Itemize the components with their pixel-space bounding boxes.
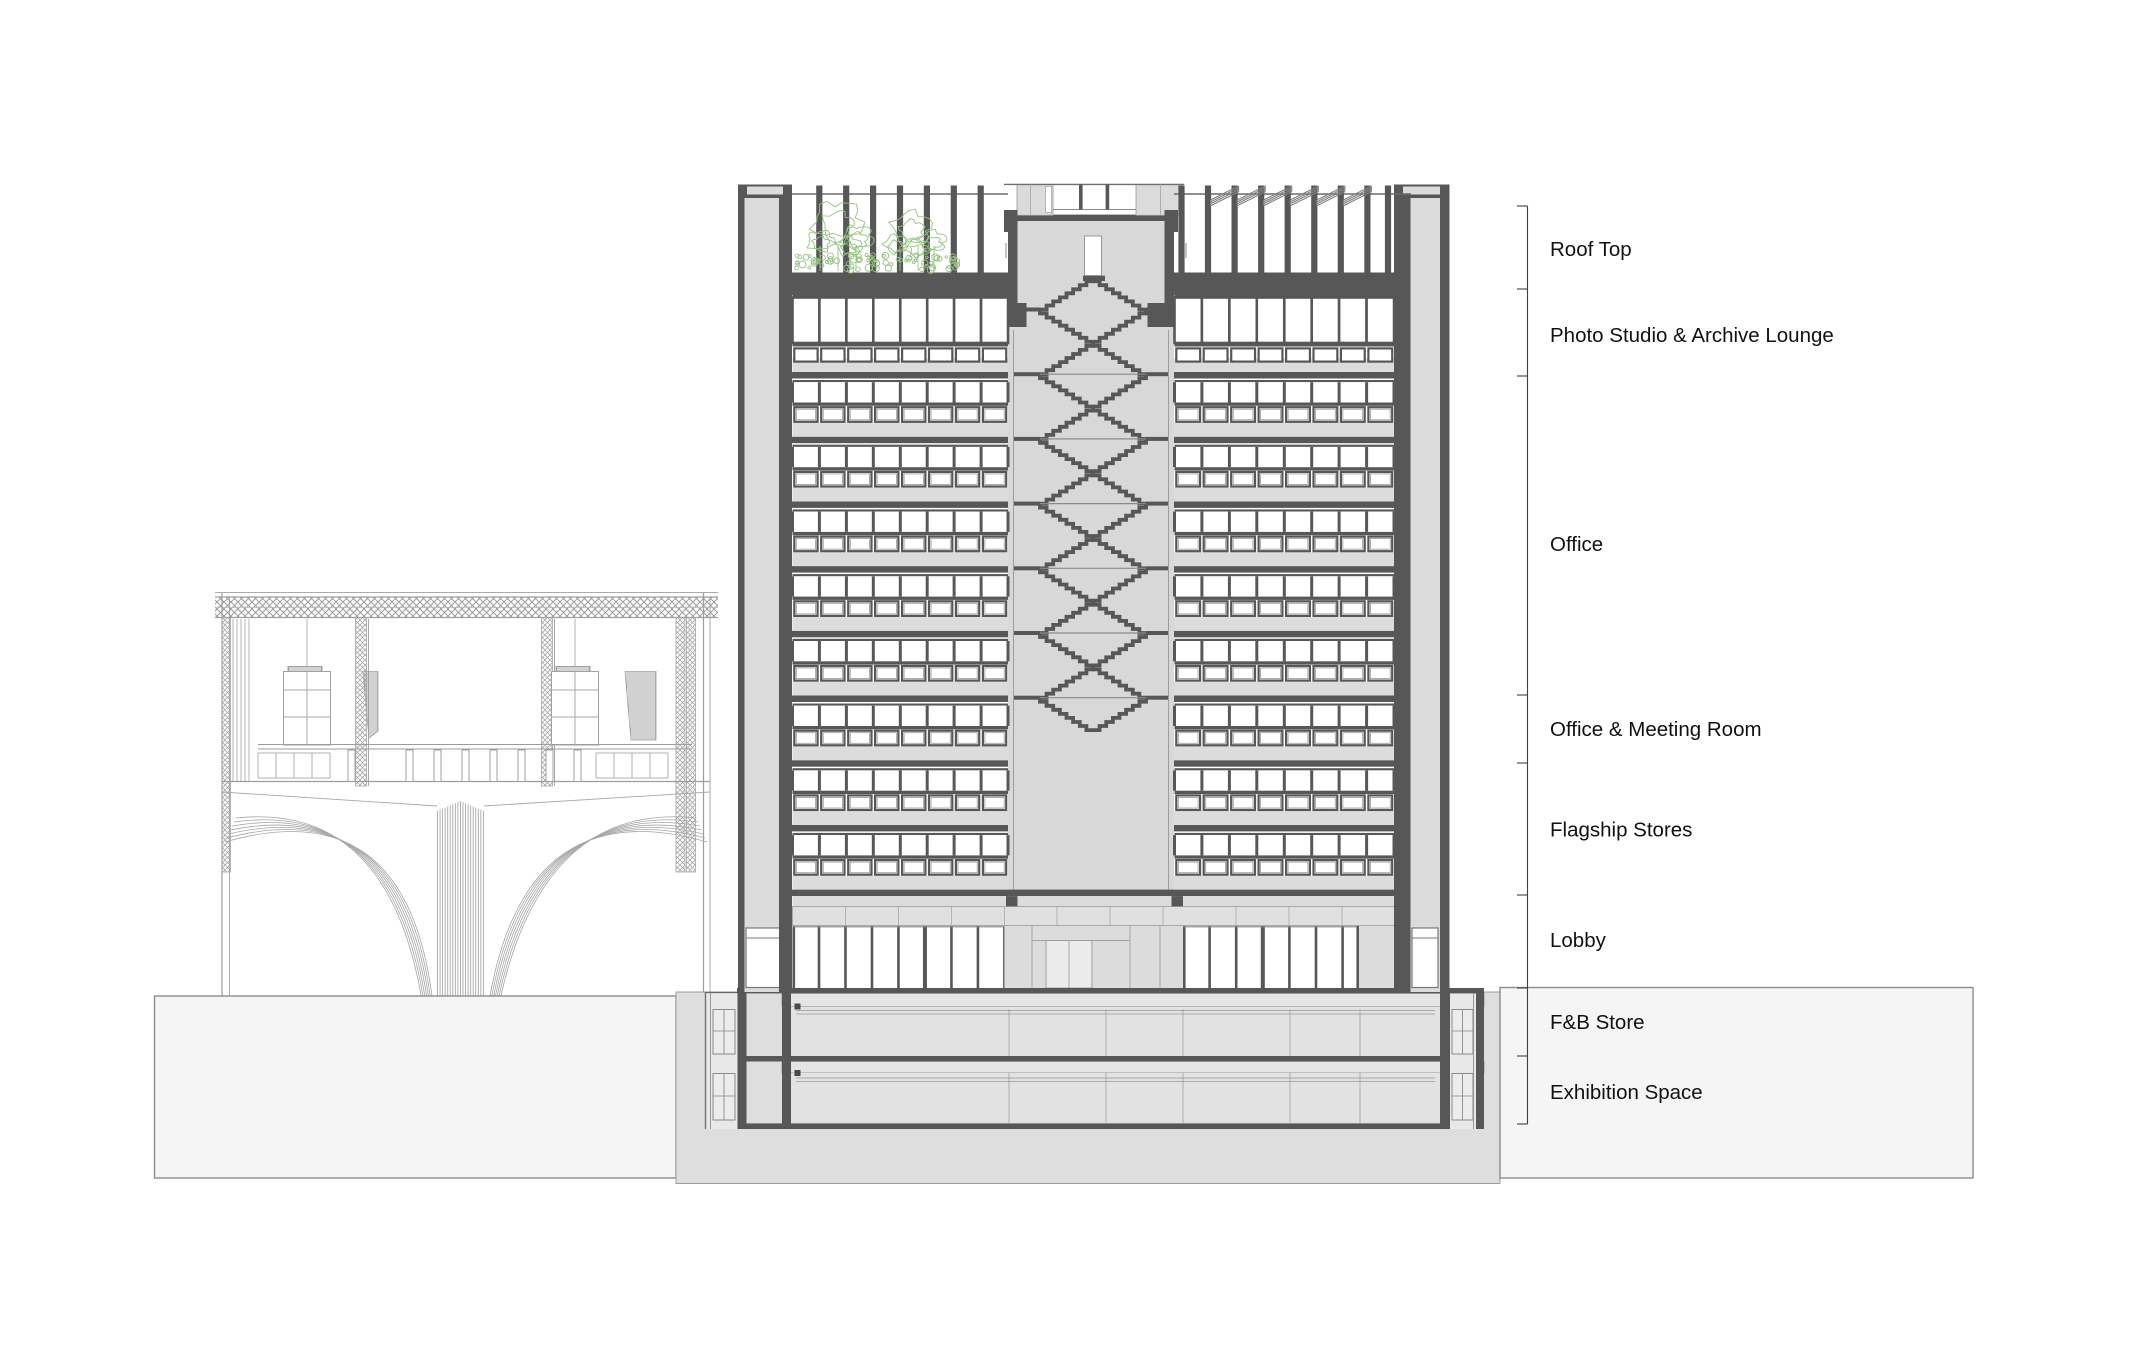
svg-text:Photo Studio & Archive Lounge: Photo Studio & Archive Lounge [1550, 324, 1834, 347]
svg-text:Exhibition Space: Exhibition Space [1550, 1081, 1703, 1104]
svg-text:F&B Store: F&B Store [1550, 1011, 1645, 1034]
svg-text:Flagship Stores: Flagship Stores [1550, 819, 1692, 842]
svg-text:Office & Meeting Room: Office & Meeting Room [1550, 718, 1762, 741]
svg-text:Roof Top: Roof Top [1550, 238, 1632, 261]
svg-text:Office: Office [1550, 533, 1603, 556]
svg-text:Lobby: Lobby [1550, 929, 1607, 952]
